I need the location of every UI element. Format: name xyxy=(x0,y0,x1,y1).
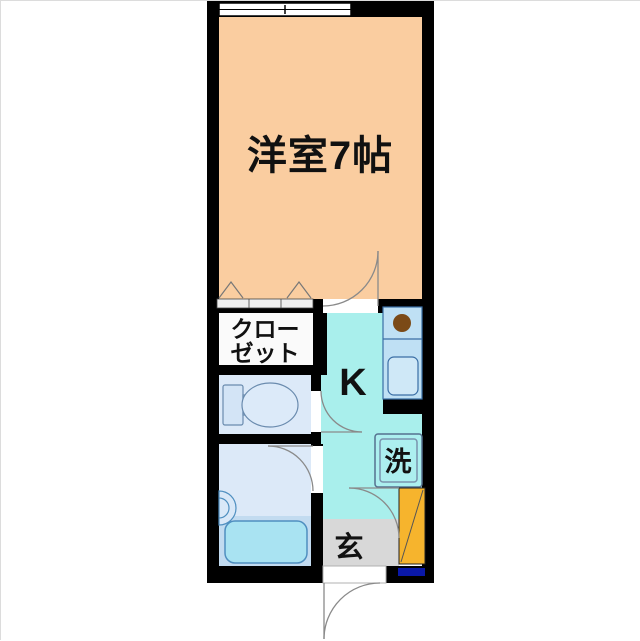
closet-label-line1: クロー xyxy=(231,316,300,342)
kitchen-label: K xyxy=(339,362,367,404)
toilet-icon xyxy=(223,383,298,427)
floor-plan: 洋室7帖 クロー ゼット K 洗 玄 xyxy=(1,1,640,641)
floor-plan-page: 洋室7帖 クロー ゼット K 洗 玄 xyxy=(0,0,640,640)
wall-toilet-bath xyxy=(207,434,321,444)
front-door-threshold xyxy=(323,566,386,583)
kitchen-counter xyxy=(383,307,422,399)
wall-closet-toilet xyxy=(207,365,313,375)
washer-label: 洗 xyxy=(385,447,412,477)
shoe-cabinet xyxy=(399,488,425,564)
burner-icon xyxy=(393,314,411,332)
main-room-label: 洋室7帖 xyxy=(247,134,393,178)
door-opening-toilet xyxy=(311,391,321,432)
window-icon xyxy=(219,3,351,16)
wall-left xyxy=(207,1,219,583)
entrance-label: 玄 xyxy=(334,530,363,564)
navy-step xyxy=(398,568,425,576)
sink-icon xyxy=(388,357,418,395)
wall-counter-stub xyxy=(383,399,422,414)
closet-label-line2: ゼット xyxy=(231,340,300,366)
bathtub-icon xyxy=(225,521,307,563)
